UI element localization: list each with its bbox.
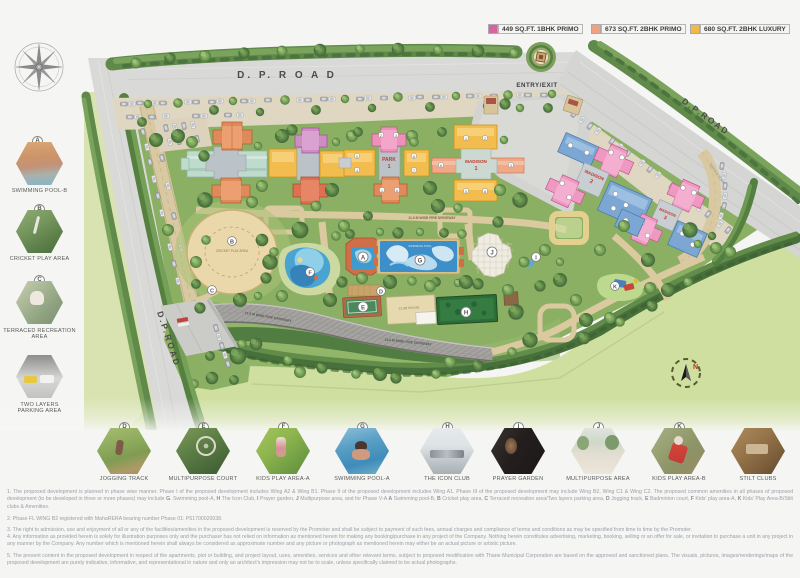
svg-text:C: C xyxy=(210,288,214,294)
svg-text:1: 1 xyxy=(387,164,390,170)
svg-text:MADISON: MADISON xyxy=(465,159,487,164)
svg-text:1: 1 xyxy=(474,166,477,172)
svg-text:2: 2 xyxy=(484,137,486,141)
svg-text:A: A xyxy=(361,256,366,262)
svg-text:N: N xyxy=(693,364,698,371)
svg-text:SWIMMING POOL: SWIMMING POOL xyxy=(408,244,432,248)
svg-text:H: H xyxy=(464,311,468,317)
svg-text:3: 3 xyxy=(510,164,512,168)
svg-text:11.0 M WIDE FIRE DRIVEWAY: 11.0 M WIDE FIRE DRIVEWAY xyxy=(408,216,456,220)
svg-text:3: 3 xyxy=(395,134,397,138)
svg-text:D: D xyxy=(379,289,383,295)
svg-text:D. P. R O A D: D. P. R O A D xyxy=(237,70,337,81)
svg-text:7: 7 xyxy=(413,169,415,173)
svg-text:4: 4 xyxy=(356,169,358,173)
svg-text:5: 5 xyxy=(465,190,467,194)
svg-text:2: 2 xyxy=(380,134,382,138)
svg-text:6: 6 xyxy=(396,189,398,193)
svg-text:E: E xyxy=(361,305,365,311)
svg-text:6: 6 xyxy=(440,164,442,168)
svg-text:1: 1 xyxy=(381,189,383,193)
svg-text:PARK: PARK xyxy=(382,157,396,163)
svg-text:ENTRY/EXIT: ENTRY/EXIT xyxy=(516,82,557,89)
svg-text:K: K xyxy=(613,284,617,290)
svg-text:8: 8 xyxy=(484,190,486,194)
svg-text:G: G xyxy=(418,259,423,265)
svg-text:CRICKET PLAY AREA: CRICKET PLAY AREA xyxy=(216,249,249,253)
svg-text:1: 1 xyxy=(465,137,467,141)
svg-text:8: 8 xyxy=(413,155,415,159)
svg-text:5: 5 xyxy=(356,155,358,159)
svg-text:B: B xyxy=(230,239,234,245)
svg-text:J: J xyxy=(490,251,493,257)
